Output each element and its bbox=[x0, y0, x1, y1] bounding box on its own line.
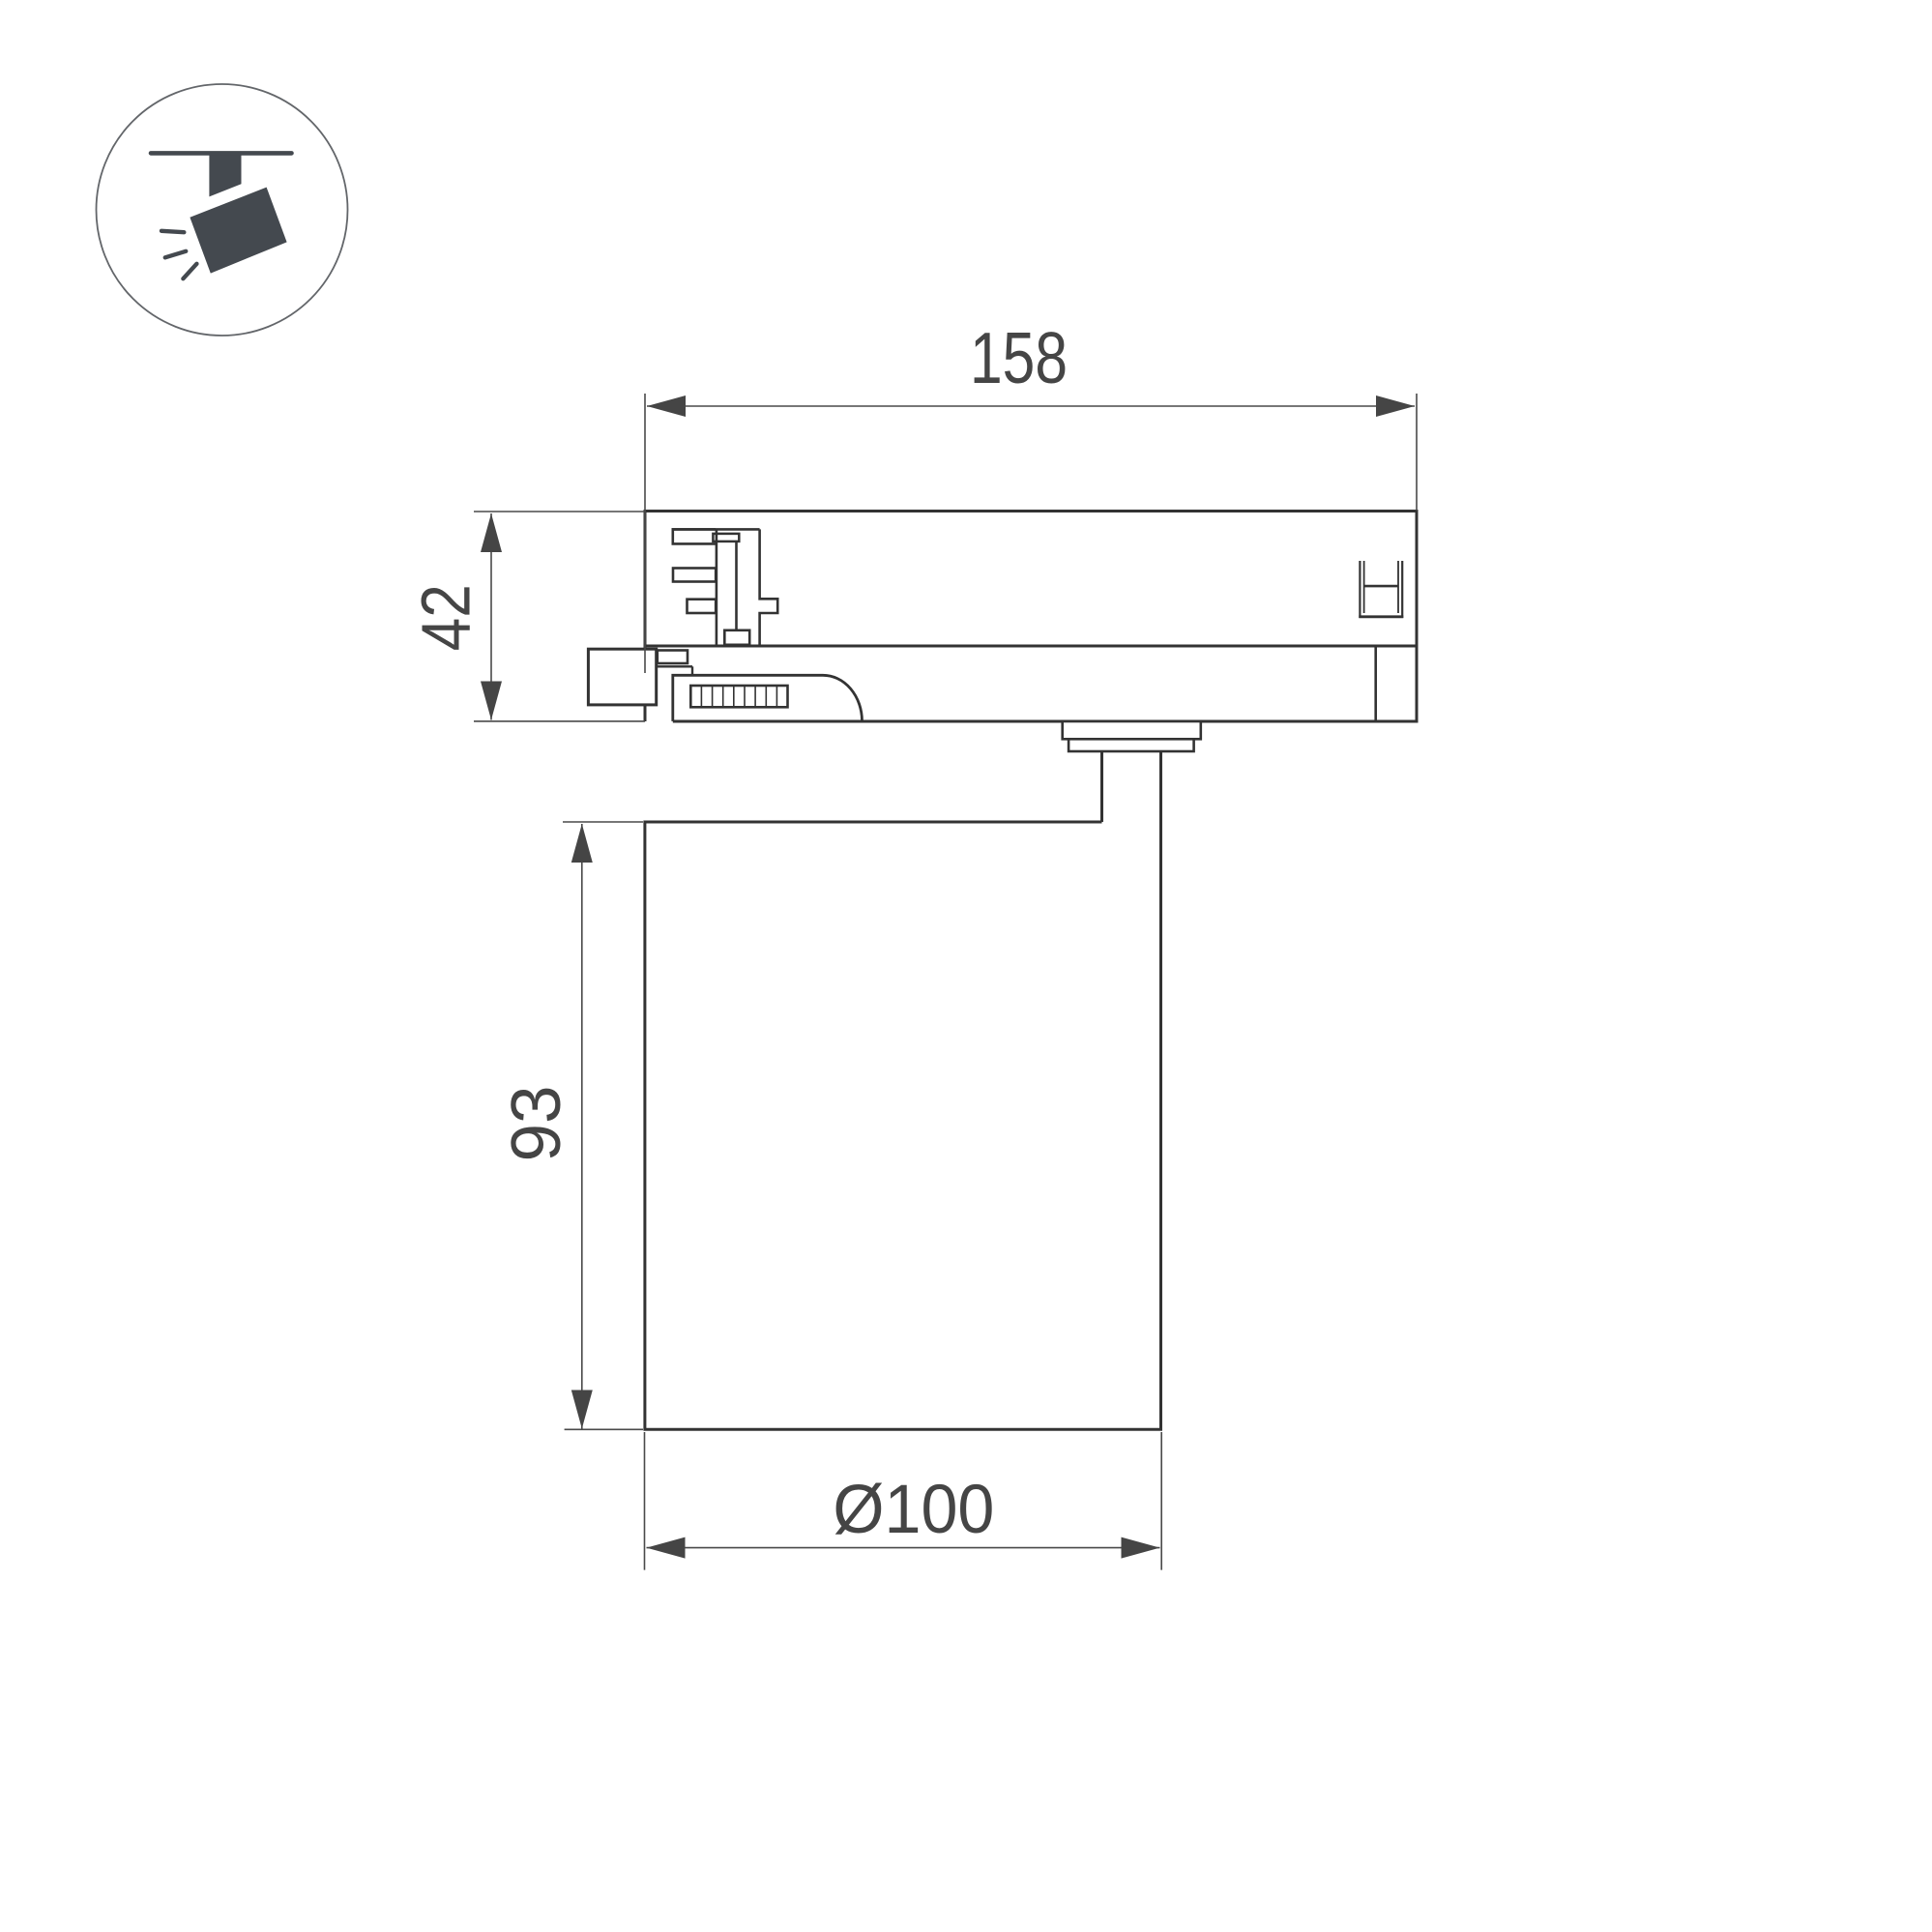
svg-text:158: 158 bbox=[970, 317, 1068, 398]
svg-text:93: 93 bbox=[498, 1086, 575, 1162]
svg-text:42: 42 bbox=[408, 584, 484, 651]
svg-text:Ø100: Ø100 bbox=[833, 1472, 994, 1548]
